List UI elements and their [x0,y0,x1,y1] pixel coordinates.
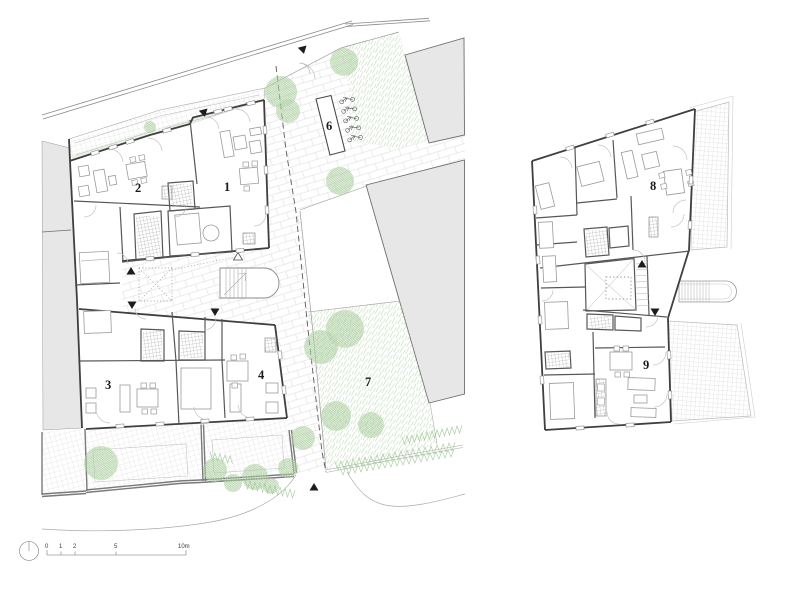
svg-text:3: 3 [105,378,111,392]
svg-text:1: 1 [224,180,230,194]
svg-text:9: 9 [643,358,649,372]
svg-text:6: 6 [326,119,332,133]
svg-text:10m: 10m [178,544,190,550]
svg-text:7: 7 [365,375,371,389]
svg-text:2: 2 [135,181,141,195]
svg-text:4: 4 [258,368,265,382]
svg-text:8: 8 [650,179,656,193]
